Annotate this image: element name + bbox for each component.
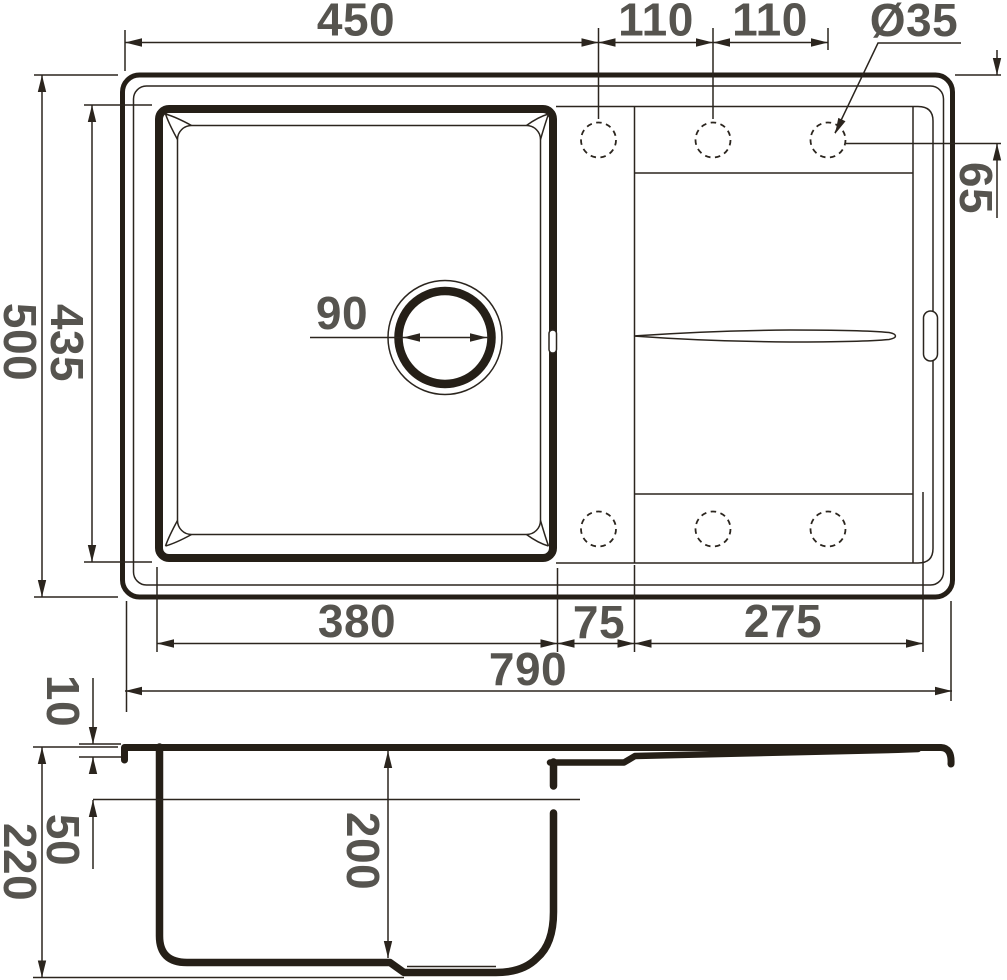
dim-450-label: 450 [317, 0, 395, 46]
faucet-hole [696, 512, 731, 547]
bowl-corner-chamfer [527, 521, 549, 547]
drainboard-drain-slot [924, 311, 938, 361]
drainboard-groove [634, 330, 896, 342]
dim-275-label: 275 [744, 595, 822, 647]
dim-435-label: 435 [41, 304, 93, 382]
section-view: 220 10 50 200 [0, 675, 951, 978]
dim-50: 50 [37, 800, 97, 869]
overflow-slot [549, 330, 557, 353]
dim-dia35-label: Ø35 [870, 0, 958, 46]
technical-drawing-page: 450 110 110 Ø35 65 500 [0, 0, 1007, 980]
dim-790: 790 [125, 601, 952, 712]
dim-110a-label: 110 [618, 0, 694, 46]
dim-65-label: 65 [950, 162, 1002, 214]
dim-435: 435 [41, 105, 152, 562]
dim-top-chain: 450 110 110 [125, 0, 828, 119]
faucet-hole [581, 123, 616, 158]
dim-500-label: 500 [0, 303, 46, 381]
sink-drawing-canvas: 450 110 110 Ø35 65 500 [0, 0, 1007, 980]
dim-200-label: 200 [337, 812, 389, 890]
top-view: 450 110 110 Ø35 65 500 [0, 0, 1002, 712]
dim-10: 10 [37, 675, 121, 774]
bowl-corner-chamfer [527, 114, 549, 140]
dim-90-label: 90 [316, 287, 368, 339]
dim-50-label: 50 [37, 814, 89, 866]
faucet-hole [696, 123, 731, 158]
dim-hole-diameter: Ø35 [835, 0, 961, 134]
section-drainboard-line [550, 749, 918, 763]
drainboard [634, 107, 938, 564]
dim-10-label: 10 [37, 675, 89, 727]
dim-790-label: 790 [489, 643, 567, 695]
dim-380-label: 380 [318, 595, 396, 647]
faucet-hole [811, 512, 846, 547]
dim-200: 200 [337, 751, 392, 958]
faucet-hole [581, 512, 616, 547]
dim-75-label: 75 [573, 596, 625, 648]
dim-110b-label: 110 [732, 0, 808, 46]
faucet-hole [811, 123, 846, 158]
